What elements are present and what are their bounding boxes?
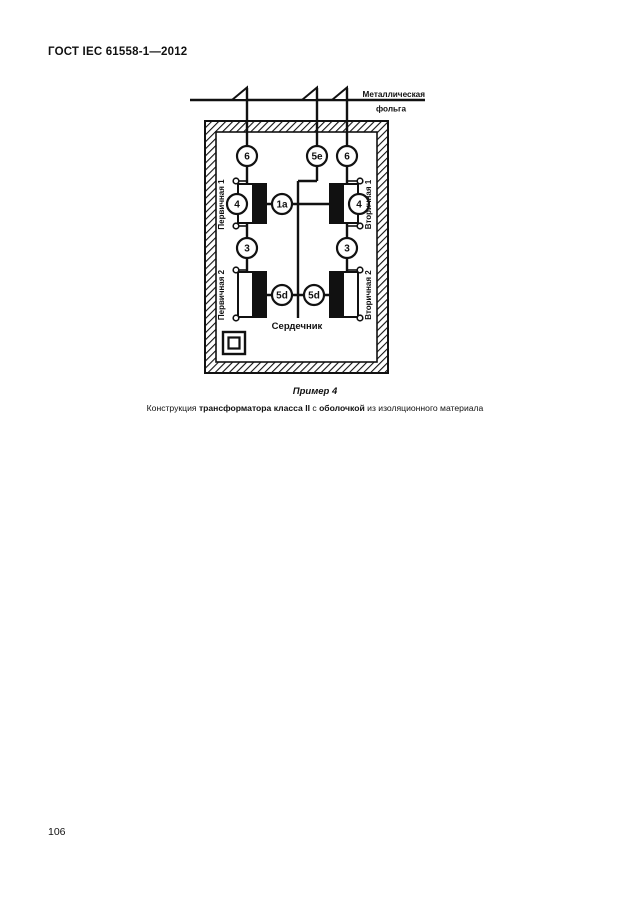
marker-label: 4	[234, 200, 240, 211]
document-header: ГОСТ IEC 61558-1—2012	[48, 46, 187, 58]
terminal	[233, 315, 239, 321]
figure-example-label: Пример 4	[0, 386, 630, 397]
marker-label: 5e	[311, 152, 323, 163]
marker-label: 4	[356, 200, 362, 211]
terminal	[357, 267, 363, 273]
terminal	[357, 223, 363, 229]
primary1-winding-core-side	[252, 184, 266, 223]
metal-foil-label-line2: фольга	[376, 105, 406, 114]
terminal	[357, 315, 363, 321]
foil-connection-triangle	[232, 88, 247, 101]
caption-part-bold: оболочкой	[319, 403, 365, 413]
marker-label: 1a	[276, 200, 288, 211]
caption-part: Конструкция	[147, 403, 199, 413]
marker-label: 5d	[308, 291, 320, 302]
terminal	[233, 267, 239, 273]
caption-part: из изоляционного материала	[365, 403, 484, 413]
core-label: Сердечник	[272, 321, 323, 332]
terminal	[233, 178, 239, 184]
primary2-winding-core-side	[252, 272, 266, 317]
primary2-label: Первичная 2	[217, 269, 226, 320]
secondary2-winding-core-side	[330, 272, 344, 317]
terminal	[357, 178, 363, 184]
foil-connection-triangle	[302, 88, 317, 101]
foil-connection-triangles	[232, 88, 347, 101]
foil-connection-triangle	[332, 88, 347, 101]
marker-label: 3	[344, 244, 350, 255]
secondary2-label: Вторичная 2	[364, 270, 373, 320]
marker-label: 3	[244, 244, 250, 255]
primary1-label: Первичная 1	[217, 179, 226, 230]
marker-label: 6	[344, 152, 350, 163]
marker-label: 6	[244, 152, 250, 163]
secondary1-winding-core-side	[330, 184, 344, 223]
page-number: 106	[48, 826, 66, 838]
terminal	[233, 223, 239, 229]
metal-foil-label-line1: Металлическая	[363, 90, 426, 99]
caption-part-bold: трансформатора класса II	[199, 403, 310, 413]
insulating-enclosure	[205, 121, 388, 373]
document-page: ГОСТ IEC 61558-1—2012	[0, 0, 630, 913]
transformer-construction-diagram: 6 5e 6 4 1a 4 3 3 5d 5d Металлическ	[188, 78, 432, 378]
marker-label: 5d	[276, 291, 288, 302]
caption-part: с	[310, 403, 319, 413]
secondary1-label: Вторичная 1	[364, 179, 373, 229]
figure-caption: Конструкция трансформатора класса II с о…	[0, 403, 630, 413]
